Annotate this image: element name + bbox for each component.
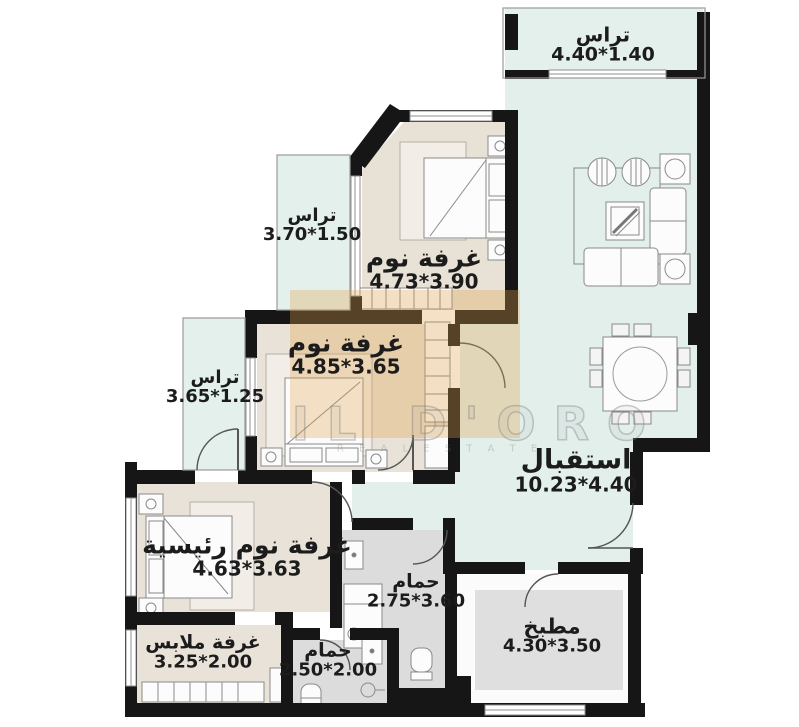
room-name: غرفة نوم [366,243,482,272]
room-name: غرفة ملابس [145,632,261,654]
room-dims: 4.63*3.63 [142,559,352,580]
room-label-kitchen: مطبخ 4.30*3.50 [503,616,601,657]
floor-plan: تراس 4.40*1.40 تراس 3.70*1.50 غرفة نوم 4… [0,0,799,727]
room-name: تراس [191,367,240,388]
room-dims: 4.40*1.40 [551,46,655,66]
room-dims: 2.50*2.00 [279,662,377,681]
room-dims: 2.75*3.60 [367,593,465,612]
room-label-terrace-upper-left: تراس 3.70*1.50 [263,207,361,245]
room-label-master-bedroom: غرفة نوم رئيسية 4.63*3.63 [142,532,352,579]
room-label-bathroom-1: حمام 2.75*3.60 [367,573,465,612]
room-dims: 10.23*4.40 [514,475,637,496]
room-name: تراس [288,205,337,226]
room-label-bedroom-1: غرفة نوم 4.73*3.90 [366,245,482,292]
room-dims: 3.25*2.00 [145,654,261,673]
room-label-bathroom-2: حمام 2.50*2.00 [279,642,377,681]
room-name: حمام [392,571,440,593]
room-label-terrace-top: تراس 4.40*1.40 [551,25,655,66]
room-dims: 4.85*3.65 [288,357,404,378]
room-name: غرفة نوم [288,328,404,357]
room-name: غرفة نوم رئيسية [142,530,352,559]
room-name: حمام [304,640,352,662]
room-dims: 4.73*3.90 [366,272,482,293]
room-dims: 3.70*1.50 [263,226,361,245]
room-dims: 4.30*3.50 [503,638,601,657]
room-label-bedroom-2: غرفة نوم 4.85*3.65 [288,330,404,377]
room-dims: 3.65*1.25 [166,388,264,407]
room-label-terrace-lower-left: تراس 3.65*1.25 [166,369,264,407]
room-label-dressing-room: غرفة ملابس 3.25*2.00 [145,634,261,673]
watermark-subtext: R E A L E S T A T E [337,444,543,455]
